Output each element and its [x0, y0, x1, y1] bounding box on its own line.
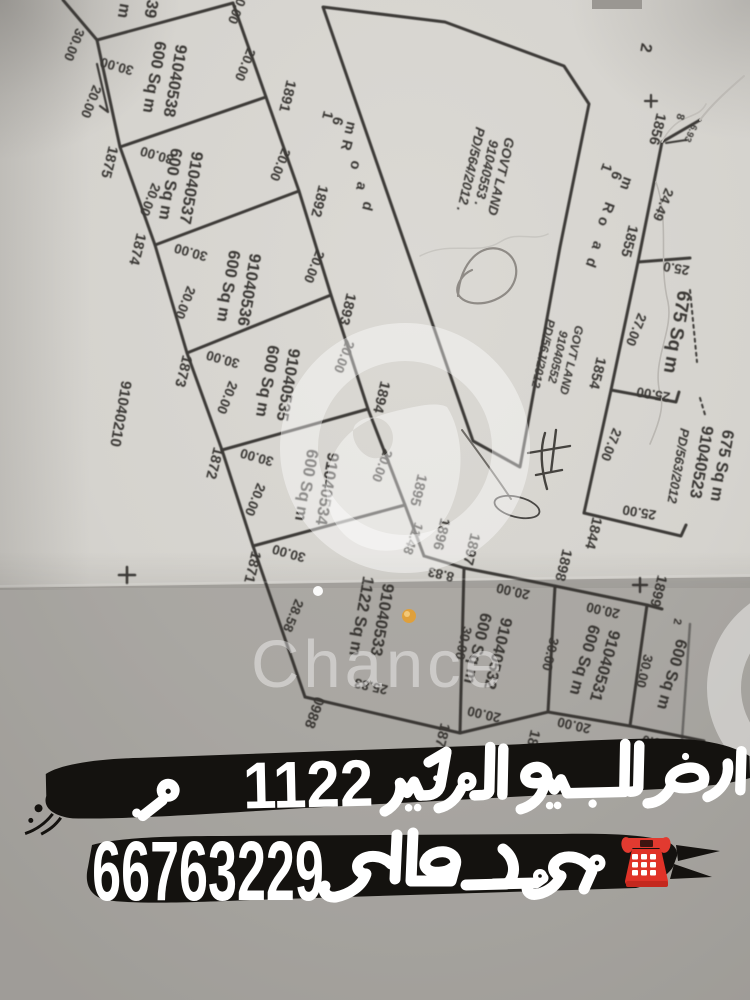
svg-text:1122: 1122 — [242, 747, 374, 823]
svg-text:66763229: 66763229 — [92, 824, 324, 918]
svg-text:m: m — [114, 2, 134, 20]
svg-text:Chance: Chance — [251, 627, 506, 702]
svg-text:39: 39 — [140, 0, 161, 19]
